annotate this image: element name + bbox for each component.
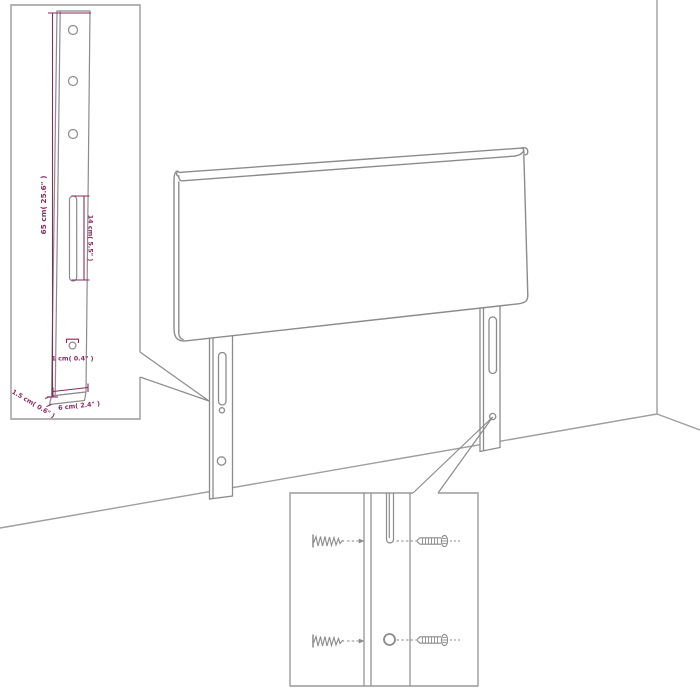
product-diagram: 65 cm( 25.6" ) 14 cm( 5.5" ) 1 cm( 0.4" … — [0, 0, 700, 700]
dimension-label-hole: 1 cm( 0.4" ) — [51, 355, 93, 363]
diagram-canvas: 65 cm( 25.6" ) 14 cm( 5.5" ) 1 cm( 0.4" … — [0, 0, 700, 700]
inset-screw-fill — [290, 493, 478, 686]
headboard-right-leg — [480, 299, 500, 452]
inset-screw-detail — [290, 417, 493, 686]
floor-line-right — [657, 414, 700, 430]
headboard-panel — [174, 148, 528, 341]
dimension-label-slot: 14 cm( 5.5" ) — [86, 215, 94, 262]
headboard-left-leg — [210, 330, 233, 499]
inset-leg-callout-lines — [140, 352, 209, 401]
dimension-label-height: 65 cm( 25.6" ) — [39, 176, 48, 235]
inset-screw-callout-lines — [413, 417, 493, 493]
